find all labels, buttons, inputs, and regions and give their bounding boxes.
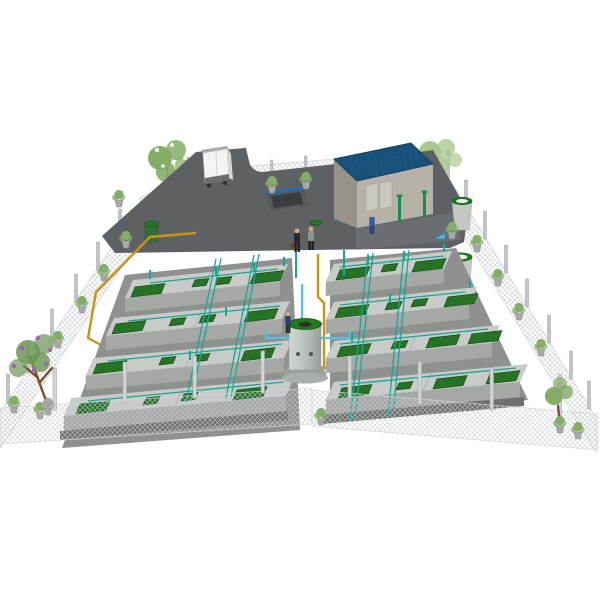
bag bbox=[291, 243, 295, 249]
manhole-cover bbox=[311, 221, 322, 225]
site-3d-view bbox=[0, 0, 600, 600]
potted-plant bbox=[112, 190, 125, 207]
site-visualization bbox=[0, 0, 600, 600]
building-door bbox=[380, 181, 392, 209]
building-door bbox=[366, 183, 378, 212]
